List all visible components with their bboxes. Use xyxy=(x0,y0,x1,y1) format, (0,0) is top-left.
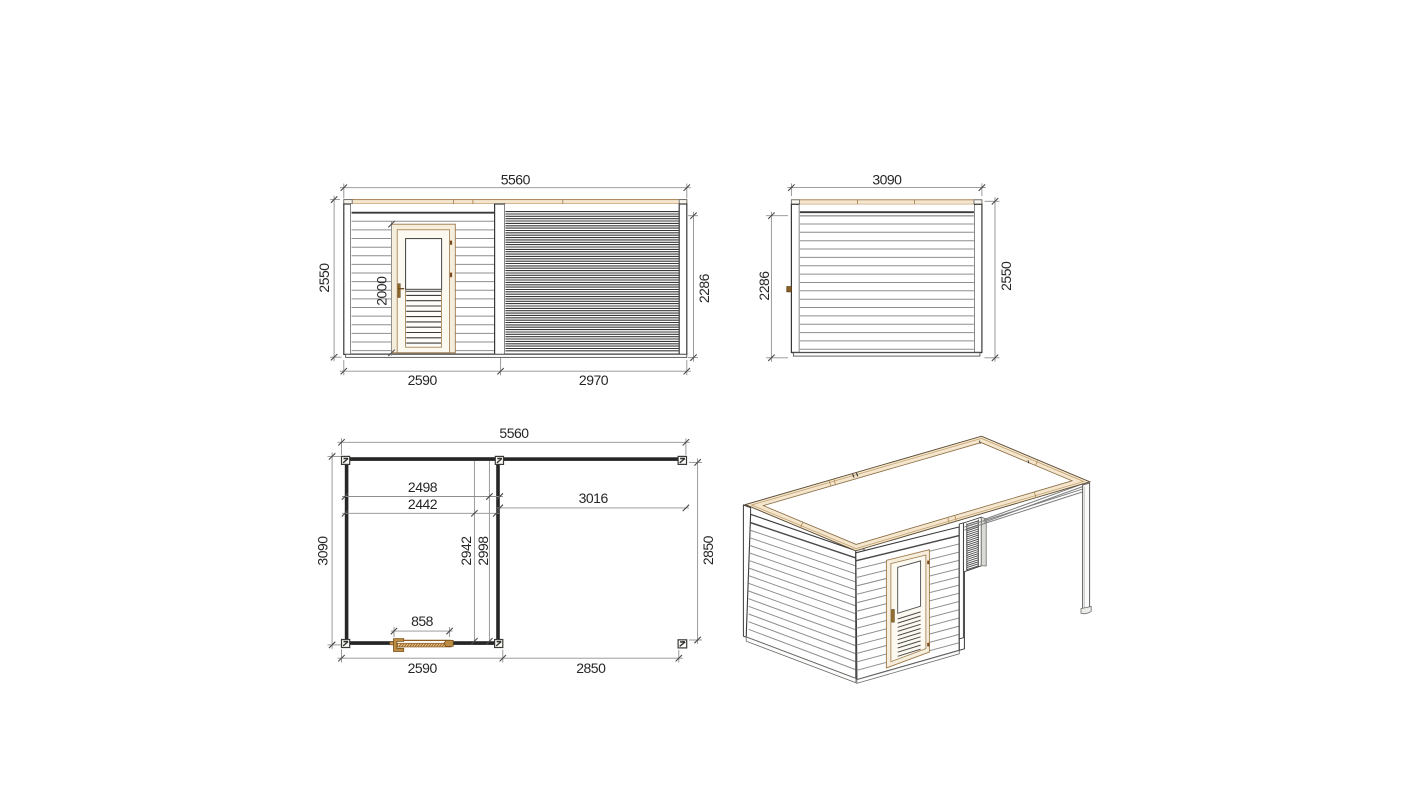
svg-text:2850: 2850 xyxy=(576,660,606,676)
svg-text:2998: 2998 xyxy=(475,536,491,566)
svg-text:858: 858 xyxy=(411,613,434,629)
svg-text:2286: 2286 xyxy=(696,273,712,303)
svg-text:2942: 2942 xyxy=(458,536,474,566)
svg-text:2550: 2550 xyxy=(998,261,1014,291)
svg-text:2590: 2590 xyxy=(408,372,438,388)
svg-text:2850: 2850 xyxy=(700,535,716,565)
svg-text:5560: 5560 xyxy=(501,172,531,188)
svg-text:2442: 2442 xyxy=(408,496,438,512)
svg-text:5560: 5560 xyxy=(499,425,529,441)
svg-text:2000: 2000 xyxy=(374,276,390,306)
svg-text:2550: 2550 xyxy=(316,263,332,293)
svg-text:3016: 3016 xyxy=(579,490,609,506)
svg-text:2498: 2498 xyxy=(408,479,438,495)
svg-text:2590: 2590 xyxy=(408,660,438,676)
svg-text:3090: 3090 xyxy=(314,536,330,566)
svg-text:3090: 3090 xyxy=(872,172,902,188)
svg-text:2970: 2970 xyxy=(579,372,609,388)
svg-text:2286: 2286 xyxy=(756,271,772,301)
